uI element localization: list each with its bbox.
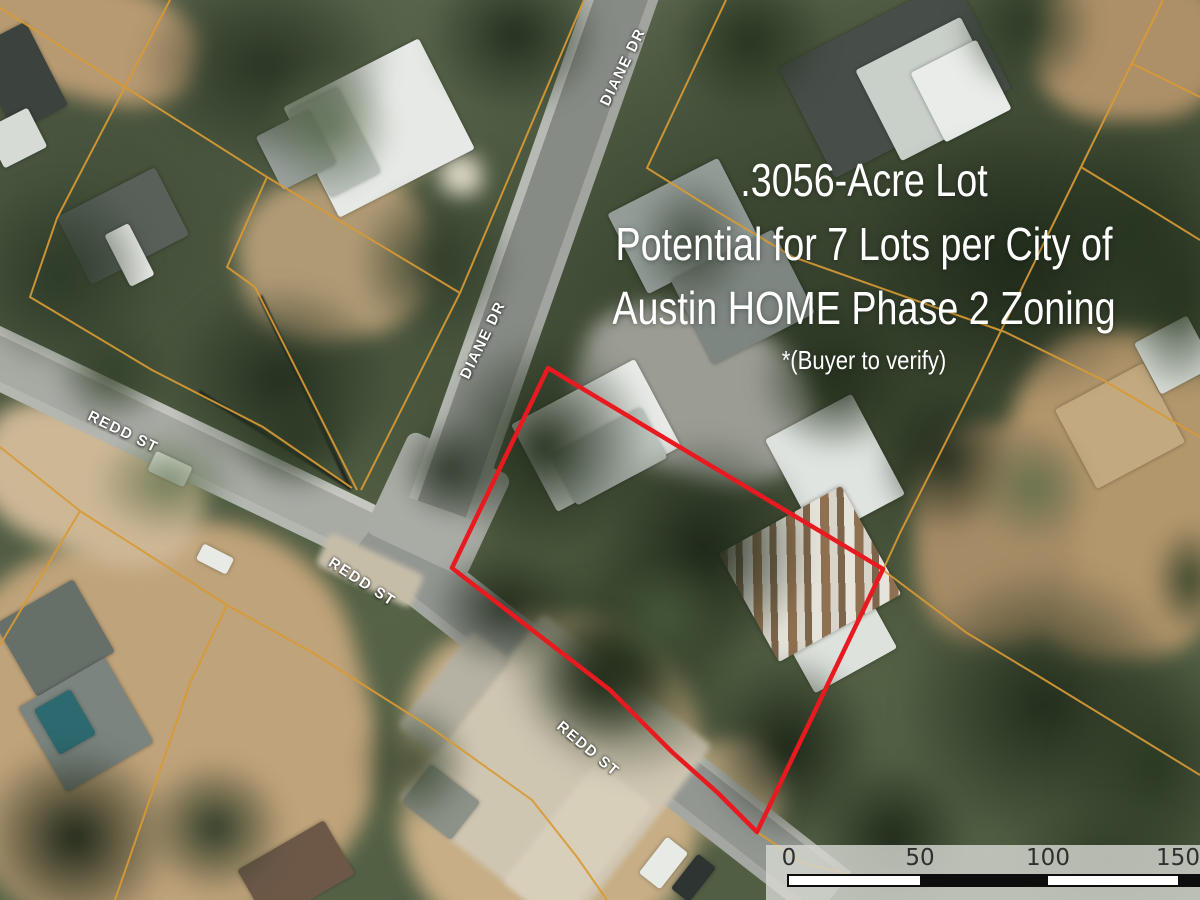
scale-segment [789,876,920,885]
scale-segment [920,876,1048,885]
scale-bar: 0 50 100 150 [766,845,1200,900]
aerial-map: DIANE DR DIANE DR REDD ST REDD ST REDD S… [0,0,1200,900]
headline-potential: Potential for 7 Lots per City of [577,212,1151,276]
scale-tick-0: 0 [782,845,797,871]
scale-bar-segments [787,874,1200,887]
headline-zoning: Austin HOME Phase 2 Zoning [577,276,1151,340]
listing-headline: .3056-Acre Lot Potential for 7 Lots per … [514,148,1200,378]
scale-tick-50: 50 [905,845,934,871]
scale-tick-150: 150 [1156,845,1200,871]
headline-acreage: .3056-Acre Lot [577,148,1151,212]
headline-disclaimer: *(Buyer to verify) [567,342,1162,378]
scale-segment [1048,876,1178,885]
scale-tick-100: 100 [1026,845,1070,871]
scale-segment [1178,876,1198,885]
subject-property-boundary [452,368,883,832]
